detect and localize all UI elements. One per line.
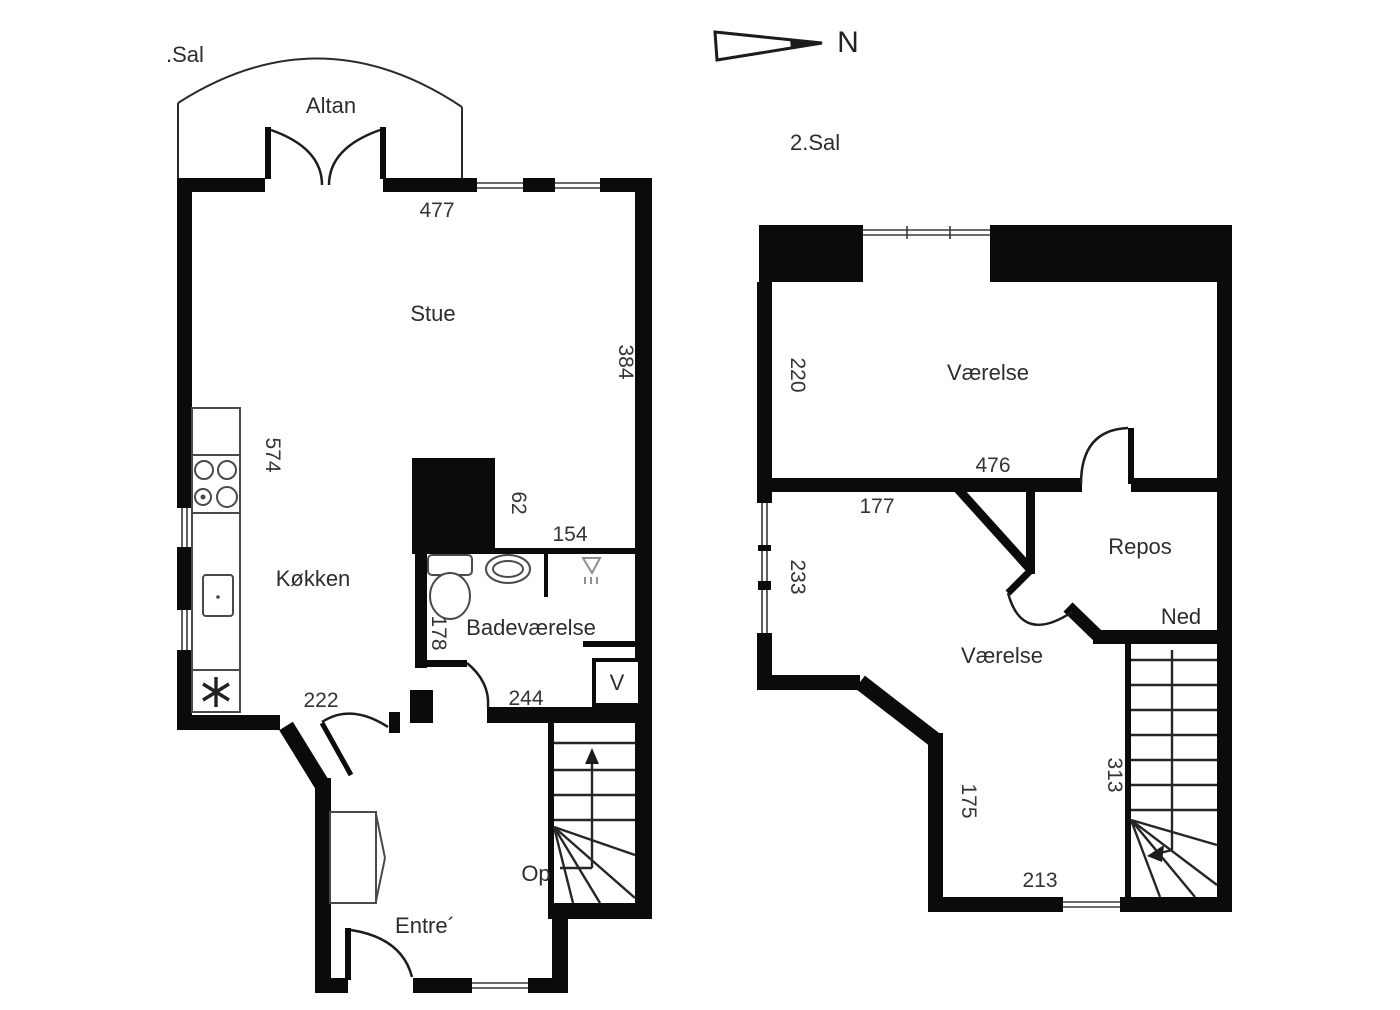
- room-label-badevaerelse: Badeværelse: [466, 615, 596, 640]
- floor2-plan: 2.Sal 220 Værelse 476 177 Repos Ned 233 …: [757, 130, 1232, 912]
- stairs-up: [548, 722, 635, 903]
- balcony-double-door: [265, 127, 386, 185]
- floorplan-canvas: N: [0, 0, 1400, 1010]
- window-left-1: [178, 508, 191, 547]
- dim-177: 177: [859, 495, 894, 518]
- dim-62: 62: [507, 491, 530, 514]
- dim-154: 154: [552, 523, 587, 546]
- north-room-door: [1081, 428, 1134, 484]
- dim-233: 233: [786, 559, 809, 594]
- bath-sink-icon: [486, 555, 530, 583]
- dim-476: 476: [975, 454, 1010, 477]
- kitchen-counter: [192, 408, 240, 712]
- shower-icon: [583, 558, 600, 584]
- dim-178: 178: [427, 615, 450, 650]
- toilet-icon: [428, 555, 472, 619]
- dim-384: 384: [614, 344, 637, 379]
- kitchen-sink-icon: [203, 575, 233, 616]
- window-top-2: [555, 179, 600, 192]
- room-label-stue: Stue: [410, 301, 455, 326]
- room-label-altan: Altan: [306, 93, 356, 118]
- room-label-vaerelse-south: Værelse: [961, 643, 1043, 668]
- room-label-repos: Repos: [1108, 534, 1172, 559]
- dim-477: 477: [419, 199, 454, 222]
- stairs-up-label: Op: [521, 861, 550, 886]
- window-left-2: [178, 610, 191, 650]
- room-label-entre: Entre´: [395, 913, 455, 938]
- dim-213: 213: [1022, 869, 1057, 892]
- window-f2-left: [758, 503, 771, 633]
- window-f2-bottom: [1063, 898, 1120, 911]
- compass-north-label: N: [837, 26, 859, 59]
- kitchen-door: [322, 714, 388, 775]
- window-top-1: [477, 179, 523, 192]
- floor2-title: 2.Sal: [790, 130, 840, 155]
- wardrobe: [330, 812, 385, 903]
- shaft-block: [412, 458, 495, 550]
- dim-244: 244: [508, 687, 543, 710]
- dim-574: 574: [261, 437, 284, 472]
- floor1-plan: V .Sal Altan 47: [166, 42, 652, 993]
- stairs-down: [1125, 644, 1217, 897]
- south-room-door: [1008, 570, 1072, 625]
- floorplan-page: N: [0, 0, 1400, 1010]
- washer-label: V: [610, 670, 625, 695]
- dim-222: 222: [303, 689, 338, 712]
- stairs-down-label: Ned: [1161, 604, 1201, 629]
- dim-175: 175: [957, 783, 980, 818]
- balcony-outline: [178, 58, 462, 178]
- room-label-kokken: Køkken: [276, 566, 351, 591]
- floor1-title: .Sal: [166, 42, 204, 67]
- north-arrow-icon: [715, 32, 822, 60]
- window-bottom: [472, 979, 528, 992]
- room-label-vaerelse-north: Værelse: [947, 360, 1029, 385]
- dim-220: 220: [786, 357, 809, 392]
- dim-313: 313: [1103, 757, 1126, 792]
- window-f2-top: [863, 226, 990, 239]
